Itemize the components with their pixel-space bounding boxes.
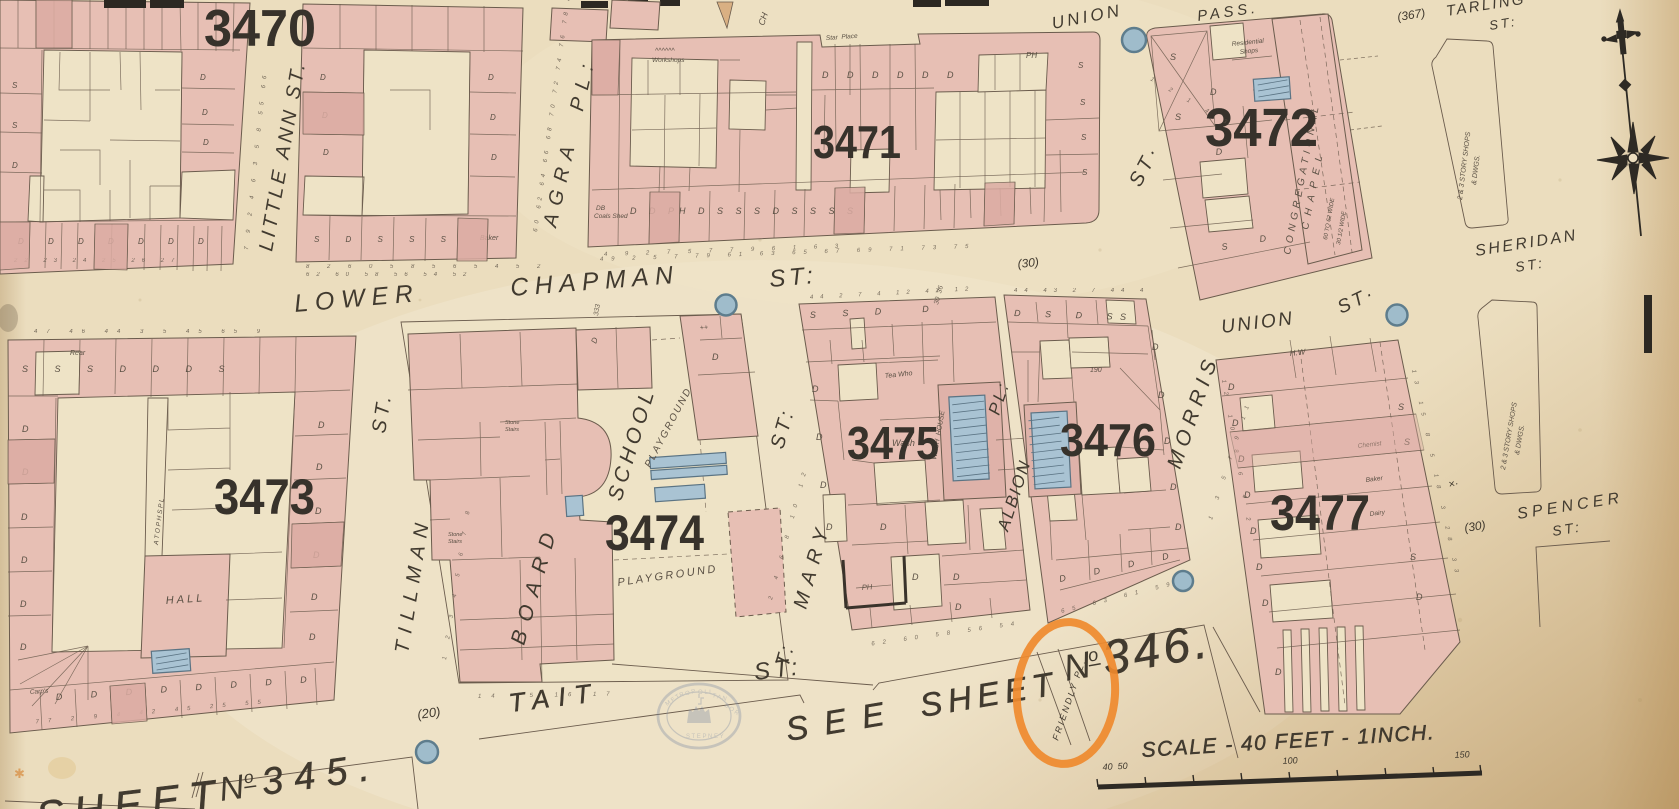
svg-text:S: S [1410, 552, 1416, 562]
svg-text:D: D [1210, 87, 1217, 97]
svg-text:D: D [1262, 598, 1269, 608]
svg-text:D D D D D D: D D D D D D [822, 70, 962, 80]
svg-text:D: D [816, 432, 823, 442]
svg-text:D: D [712, 352, 719, 362]
svg-text:D: D [309, 632, 316, 642]
svg-text:S: S [1398, 402, 1404, 412]
svg-text:D: D [20, 642, 27, 652]
svg-text:D: D [1158, 390, 1165, 400]
svg-text:Stone: Stone [505, 420, 519, 426]
svg-text:D: D [820, 480, 827, 490]
svg-text:D: D [203, 138, 209, 147]
svg-text:S T E P N E Y: S T E P N E Y [686, 734, 724, 740]
svg-text:^^^^^^: ^^^^^^ [655, 48, 675, 55]
svg-text:S: S [1080, 98, 1086, 107]
svg-text:S: S [1170, 52, 1176, 62]
svg-text:40 50: 40 50 [1102, 761, 1128, 772]
svg-text:D: D [1152, 342, 1159, 352]
svg-text:Stone: Stone [448, 532, 462, 538]
svg-text:3471: 3471 [813, 116, 901, 168]
svg-text:D: D [955, 602, 992, 612]
svg-text:H.W: H.W [1289, 347, 1307, 358]
svg-text:++: ++ [700, 324, 709, 332]
svg-text:S: S [12, 81, 47, 90]
svg-text:8 2 6 0 5 8 5 6 5 4 5 2: 8 2 6 0 5 8 5 6 5 4 5 2 [306, 264, 548, 270]
svg-text:D: D [318, 420, 325, 430]
svg-text:D: D [202, 108, 208, 117]
svg-text:D: D [12, 161, 18, 170]
svg-text:S: S [1175, 112, 1181, 122]
svg-text:D: D [315, 506, 322, 516]
svg-text:PH: PH [1026, 51, 1037, 60]
svg-text:44 43 2 7 44 4: 44 43 2 7 44 4 [1014, 288, 1150, 294]
svg-text:ST:: ST: [768, 262, 818, 293]
svg-text:D: D [490, 113, 496, 122]
svg-text:62 60 58 56 54 52: 62 60 58 56 54 52 [306, 272, 473, 278]
svg-text:190: 190 [1090, 367, 1102, 374]
svg-text:150: 150 [1454, 749, 1470, 760]
svg-text:D: D [311, 592, 318, 602]
svg-text:Coals Shed: Coals Shed [594, 213, 628, 220]
svg-text:S: S [1081, 133, 1087, 142]
svg-text:D: D [20, 599, 27, 609]
svg-text:D: D [22, 424, 29, 434]
svg-text:Workshops: Workshops [652, 57, 685, 64]
svg-text:PH: PH [862, 582, 874, 592]
svg-text:D: D [200, 73, 206, 82]
svg-text:ST:: ST: [752, 653, 802, 686]
svg-text:3473: 3473 [214, 469, 315, 525]
svg-text:×·: ×· [1448, 478, 1460, 491]
svg-text:D: D [1416, 592, 1423, 602]
svg-text:S D S S S: S D S S S [314, 235, 458, 244]
svg-text:S S S D D D S: S S S D D D S [22, 364, 237, 374]
svg-text:Rear: Rear [70, 350, 86, 357]
svg-text:3472: 3472 [1205, 98, 1318, 158]
svg-text:O L I: O L I [698, 690, 711, 696]
svg-text:D: D [880, 522, 887, 532]
svg-text:(20): (20) [416, 704, 441, 722]
svg-text:D: D [21, 512, 28, 522]
svg-text:D: D [320, 73, 326, 82]
svg-text:✱: ✱ [14, 766, 25, 781]
svg-text:3475: 3475 [847, 417, 939, 469]
svg-text:D D: D D [912, 572, 976, 582]
svg-text:D: D [316, 462, 323, 472]
svg-text:S: S [12, 121, 18, 130]
svg-text:D: D [1228, 382, 1235, 392]
svg-text:D: D [1175, 522, 1182, 532]
svg-text:D: D [812, 384, 819, 394]
svg-text:S: S [1078, 61, 1084, 70]
svg-text:D: D [488, 73, 494, 82]
svg-text:DB: DB [596, 205, 606, 212]
svg-text:100: 100 [1282, 755, 1298, 766]
svg-text:D: D [1275, 667, 1282, 677]
svg-text:D: D [21, 555, 28, 565]
svg-text:D: D [323, 148, 329, 157]
svg-text:D: D [1170, 482, 1177, 492]
svg-text:3477: 3477 [1270, 485, 1370, 541]
svg-text:(30): (30) [1017, 255, 1040, 271]
svg-text:D: D [1256, 562, 1263, 572]
svg-text:3476: 3476 [1060, 414, 1156, 466]
svg-text:Carp's: Carp's [30, 688, 50, 696]
svg-text:S: S [1120, 312, 1126, 322]
svg-text:S: S [1082, 168, 1088, 177]
svg-text:3470: 3470 [204, 0, 316, 58]
svg-text:3474: 3474 [605, 505, 704, 561]
svg-text:D: D [491, 153, 497, 162]
svg-text:47 46 44 3 5 45 65 9: 47 46 44 3 5 45 65 9 [34, 329, 269, 335]
svg-text:Stairs: Stairs [505, 427, 519, 433]
